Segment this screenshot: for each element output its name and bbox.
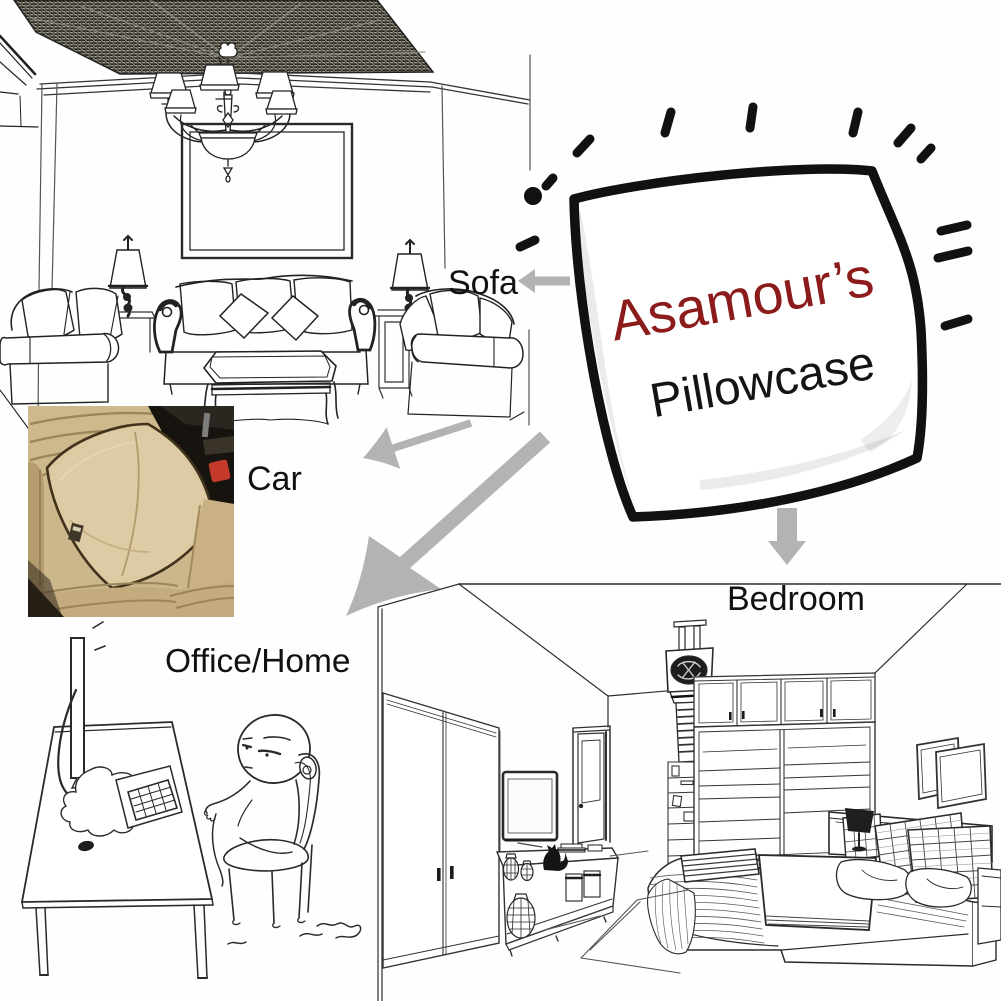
svg-text:Car: Car — [247, 460, 302, 498]
svg-text:Sofa: Sofa — [448, 264, 518, 302]
svg-text:Office/Home: Office/Home — [165, 643, 351, 680]
svg-text:Bedroom: Bedroom — [727, 580, 865, 618]
